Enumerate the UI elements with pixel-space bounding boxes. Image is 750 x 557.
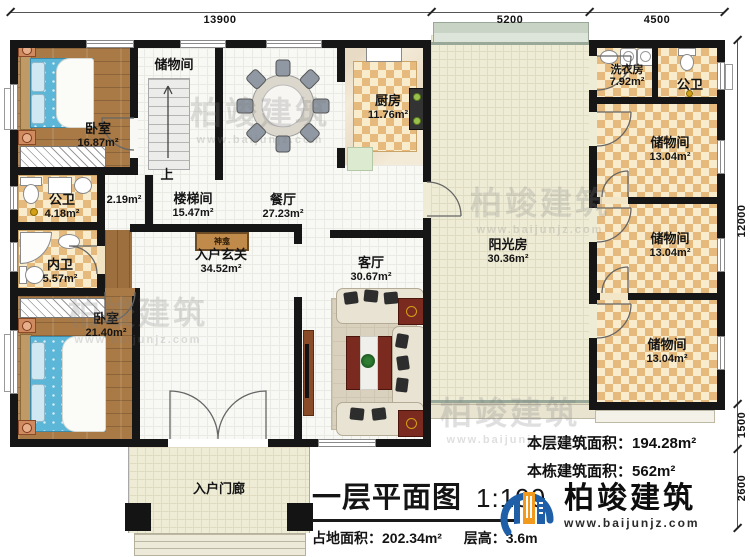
room-label-storage1: 储物间 13.04m² xyxy=(650,136,691,163)
company-logo: 柏竣建筑 www.baijunjz.com xyxy=(496,482,700,540)
room-label-living: 客厅 30.67m² xyxy=(351,256,392,283)
closet-area-label: 2.19m² xyxy=(107,194,142,206)
stairs-up-label: 上 xyxy=(160,168,173,183)
right-block-door-arcs xyxy=(597,56,631,338)
building-area-row: 本栋建筑面积：562m² xyxy=(527,460,696,481)
dim-5200: 5200 xyxy=(497,14,523,26)
room-label-stairwell: 楼梯间 15.47m² xyxy=(173,192,214,219)
dim-13900: 13900 xyxy=(203,14,236,26)
area-stats: 本层建筑面积：194.28m² 本栋建筑面积：562m² xyxy=(527,432,696,488)
dim-4500: 4500 xyxy=(644,14,670,26)
logo-website: www.baijunjz.com xyxy=(564,516,700,530)
room-label-kitchen: 厨房 11.76m² xyxy=(368,94,408,121)
room-label-laundry: 洗衣房 7.92m² xyxy=(610,64,645,89)
dim-line-top xyxy=(10,12,725,13)
logo-company-name: 柏竣建筑 xyxy=(564,482,700,515)
floor-plan-canvas: 神龛 xyxy=(0,0,750,557)
interior-door-arcs xyxy=(69,118,461,322)
room-label-sunroom: 阳光房 30.36m² xyxy=(488,238,529,265)
room-label-bath-left: 公卫 4.18m² xyxy=(45,193,80,220)
logo-mark-icon xyxy=(496,482,558,540)
room-label-storage3: 储物间 13.04m² xyxy=(647,338,688,365)
floor-area-row: 本层建筑面积：194.28m² xyxy=(527,432,696,453)
room-label-bath-right: 公卫 xyxy=(677,78,703,93)
room-label-foyer: 入户玄关 34.52m² xyxy=(195,248,247,275)
dim-2600: 2600 xyxy=(736,458,748,518)
room-label-bath-inner: 内卫 5.57m² xyxy=(43,258,78,285)
title-underline xyxy=(312,519,520,522)
entry-double-door-arc xyxy=(170,391,266,439)
room-label-bedroom-top: 卧室 16.87m² xyxy=(78,122,119,149)
dim-12000: 12000 xyxy=(736,191,748,251)
stairs-up-arrow xyxy=(164,86,172,158)
room-label-storage-hall: 储物间 xyxy=(154,58,193,73)
dim-1500: 1500 xyxy=(736,395,748,455)
room-label-storage2: 储物间 13.04m² xyxy=(650,232,691,259)
room-label-porch: 入户门廊 xyxy=(193,482,245,497)
room-label-dining: 餐厅 27.23m² xyxy=(263,193,304,220)
drawing-title: 一层平面图 xyxy=(312,474,462,516)
room-label-bedroom-bottom: 卧室 21.40m² xyxy=(86,312,127,339)
